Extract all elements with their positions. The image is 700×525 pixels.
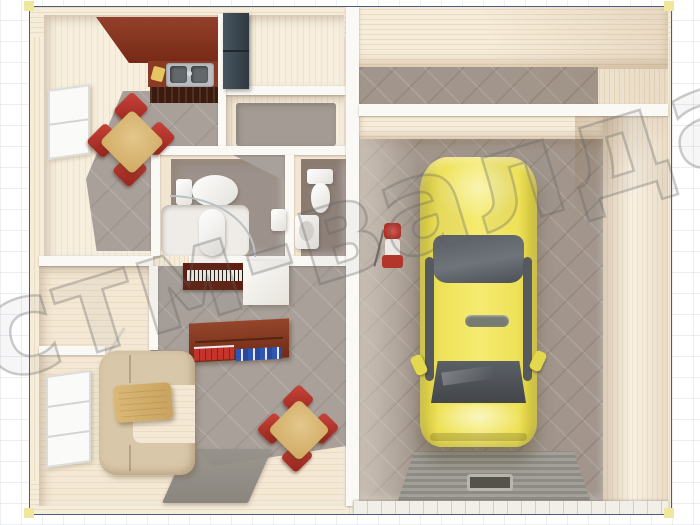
wall-bathroom-left bbox=[151, 155, 160, 256]
car-roof-badge bbox=[465, 315, 509, 327]
sofa-seam bbox=[129, 355, 131, 383]
yellow-car bbox=[420, 157, 537, 447]
floor-plan-render: стм-валда bbox=[0, 0, 700, 525]
garage-corner-shading bbox=[575, 115, 668, 215]
sofa-seam bbox=[129, 445, 131, 471]
window-mullion bbox=[48, 400, 89, 408]
vacuum-body bbox=[384, 223, 401, 239]
wall-boiler-bottom bbox=[39, 346, 105, 355]
white-cabinet bbox=[243, 261, 289, 305]
books-blue bbox=[236, 347, 282, 361]
hall-gray-floor bbox=[236, 103, 336, 146]
window-mullion bbox=[48, 430, 89, 438]
washbasin bbox=[295, 215, 319, 249]
car-rear-window bbox=[433, 235, 524, 283]
coffee-table bbox=[113, 382, 173, 423]
garage-light-path bbox=[358, 139, 418, 501]
corner-marker-top-right bbox=[664, 1, 674, 11]
wall-below-bathrooms-left bbox=[39, 256, 153, 266]
wall-between-bathrooms bbox=[285, 155, 294, 256]
garage-threshold bbox=[353, 501, 668, 514]
car-windshield bbox=[431, 361, 526, 403]
car-side-window-left bbox=[425, 257, 434, 381]
bathroom-1-sink bbox=[271, 209, 286, 231]
living-room-window bbox=[46, 370, 91, 468]
kitchen-sink bbox=[166, 63, 214, 87]
car-trunk bbox=[432, 165, 525, 223]
sink-basin-right bbox=[191, 66, 208, 83]
storage-room-shading bbox=[353, 7, 668, 104]
car-front-bumper bbox=[430, 433, 527, 441]
sink-faucet bbox=[187, 71, 192, 76]
vacuum-base bbox=[382, 255, 403, 268]
wall-hall-kitchen bbox=[218, 86, 226, 146]
dark-wardrobe bbox=[223, 13, 249, 89]
corner-marker-bottom-right bbox=[664, 508, 674, 518]
water-heater bbox=[199, 209, 225, 256]
garage-drain bbox=[467, 474, 513, 491]
sink-basin-left bbox=[170, 66, 187, 83]
kitchen-counter-dark bbox=[150, 87, 218, 103]
wall-house-garage bbox=[346, 7, 359, 506]
garage-wall-top bbox=[359, 115, 603, 141]
toilet-tank bbox=[307, 169, 333, 184]
piano bbox=[183, 263, 247, 290]
shop-vacuum bbox=[376, 219, 410, 271]
wall-boiler-right bbox=[149, 266, 158, 350]
kitchen-window bbox=[48, 84, 90, 160]
wall-storage-garage bbox=[359, 104, 668, 116]
wall-above-bathrooms bbox=[156, 146, 346, 155]
piano-keys bbox=[187, 270, 243, 281]
corner-marker-top-left bbox=[24, 1, 34, 11]
floor-plan-frame bbox=[29, 6, 672, 515]
toilet-bowl bbox=[311, 183, 330, 213]
window-mullion bbox=[50, 118, 88, 125]
books-red bbox=[194, 345, 234, 361]
corner-marker-bottom-left bbox=[24, 508, 34, 518]
